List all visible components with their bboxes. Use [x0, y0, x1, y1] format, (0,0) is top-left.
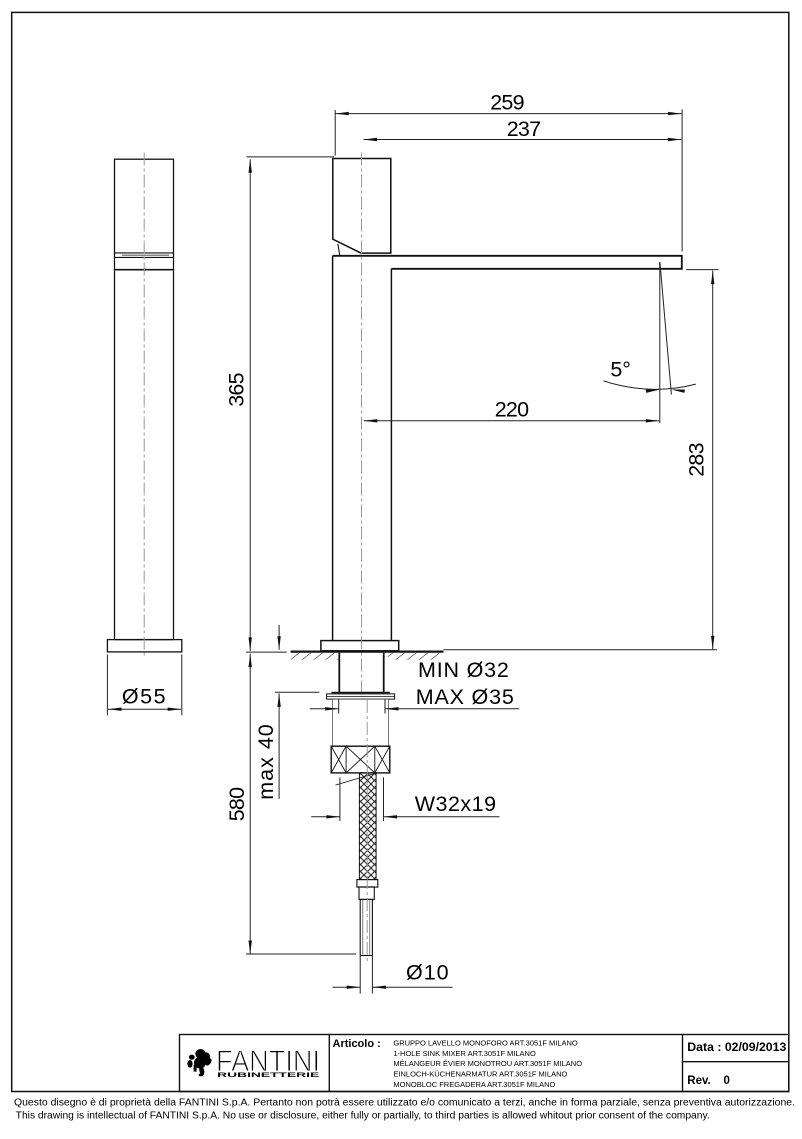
svg-text:Data : 02/09/2013: Data : 02/09/2013 [687, 1042, 786, 1054]
svg-text:283: 283 [685, 442, 709, 476]
svg-text:0: 0 [724, 1075, 730, 1087]
svg-text:220: 220 [495, 397, 529, 421]
svg-text:max 40: max 40 [254, 723, 278, 800]
svg-text:259: 259 [490, 91, 523, 115]
svg-text:GRUPPO LAVELLO MONOFORO ART.30: GRUPPO LAVELLO MONOFORO ART.3051F MILANO [393, 1039, 578, 1048]
svg-text:RUBINETTERIE: RUBINETTERIE [217, 1072, 320, 1079]
svg-text:1-HOLE SINK MIXER ART.3051F MI: 1-HOLE SINK MIXER ART.3051F MILANO [393, 1049, 536, 1058]
svg-text:365: 365 [225, 372, 249, 406]
svg-text:This drawing is intellectual o: This drawing is intellectual of FANTINI … [16, 1111, 710, 1122]
svg-text:MONOBLOC FREGADERA ART.3051F M: MONOBLOC FREGADERA ART.3051F MILANO [393, 1080, 555, 1089]
svg-text:W32x19: W32x19 [415, 792, 497, 816]
svg-text:Ø55: Ø55 [122, 685, 167, 709]
svg-text:MÉLANGEUR ÉVIER MONOTROU ART.3: MÉLANGEUR ÉVIER MONOTROU ART.3051F MILAN… [393, 1059, 582, 1068]
svg-text:Rev.: Rev. [687, 1075, 710, 1087]
svg-text:Ø10: Ø10 [406, 960, 450, 984]
svg-text:580: 580 [225, 787, 249, 821]
svg-text:EINLOCH-KÜCHENARMATUR ART.3051: EINLOCH-KÜCHENARMATUR ART.3051F MILANO [393, 1070, 567, 1079]
svg-text:MAX Ø35: MAX Ø35 [416, 685, 515, 709]
svg-text:5°: 5° [610, 358, 631, 382]
svg-text:237: 237 [507, 117, 540, 141]
svg-text:Questo disegno è di proprietà: Questo disegno è di proprietà della FANT… [14, 1098, 795, 1109]
svg-text:Articolo :: Articolo : [333, 1038, 381, 1050]
svg-text:MIN Ø32: MIN Ø32 [418, 658, 510, 682]
